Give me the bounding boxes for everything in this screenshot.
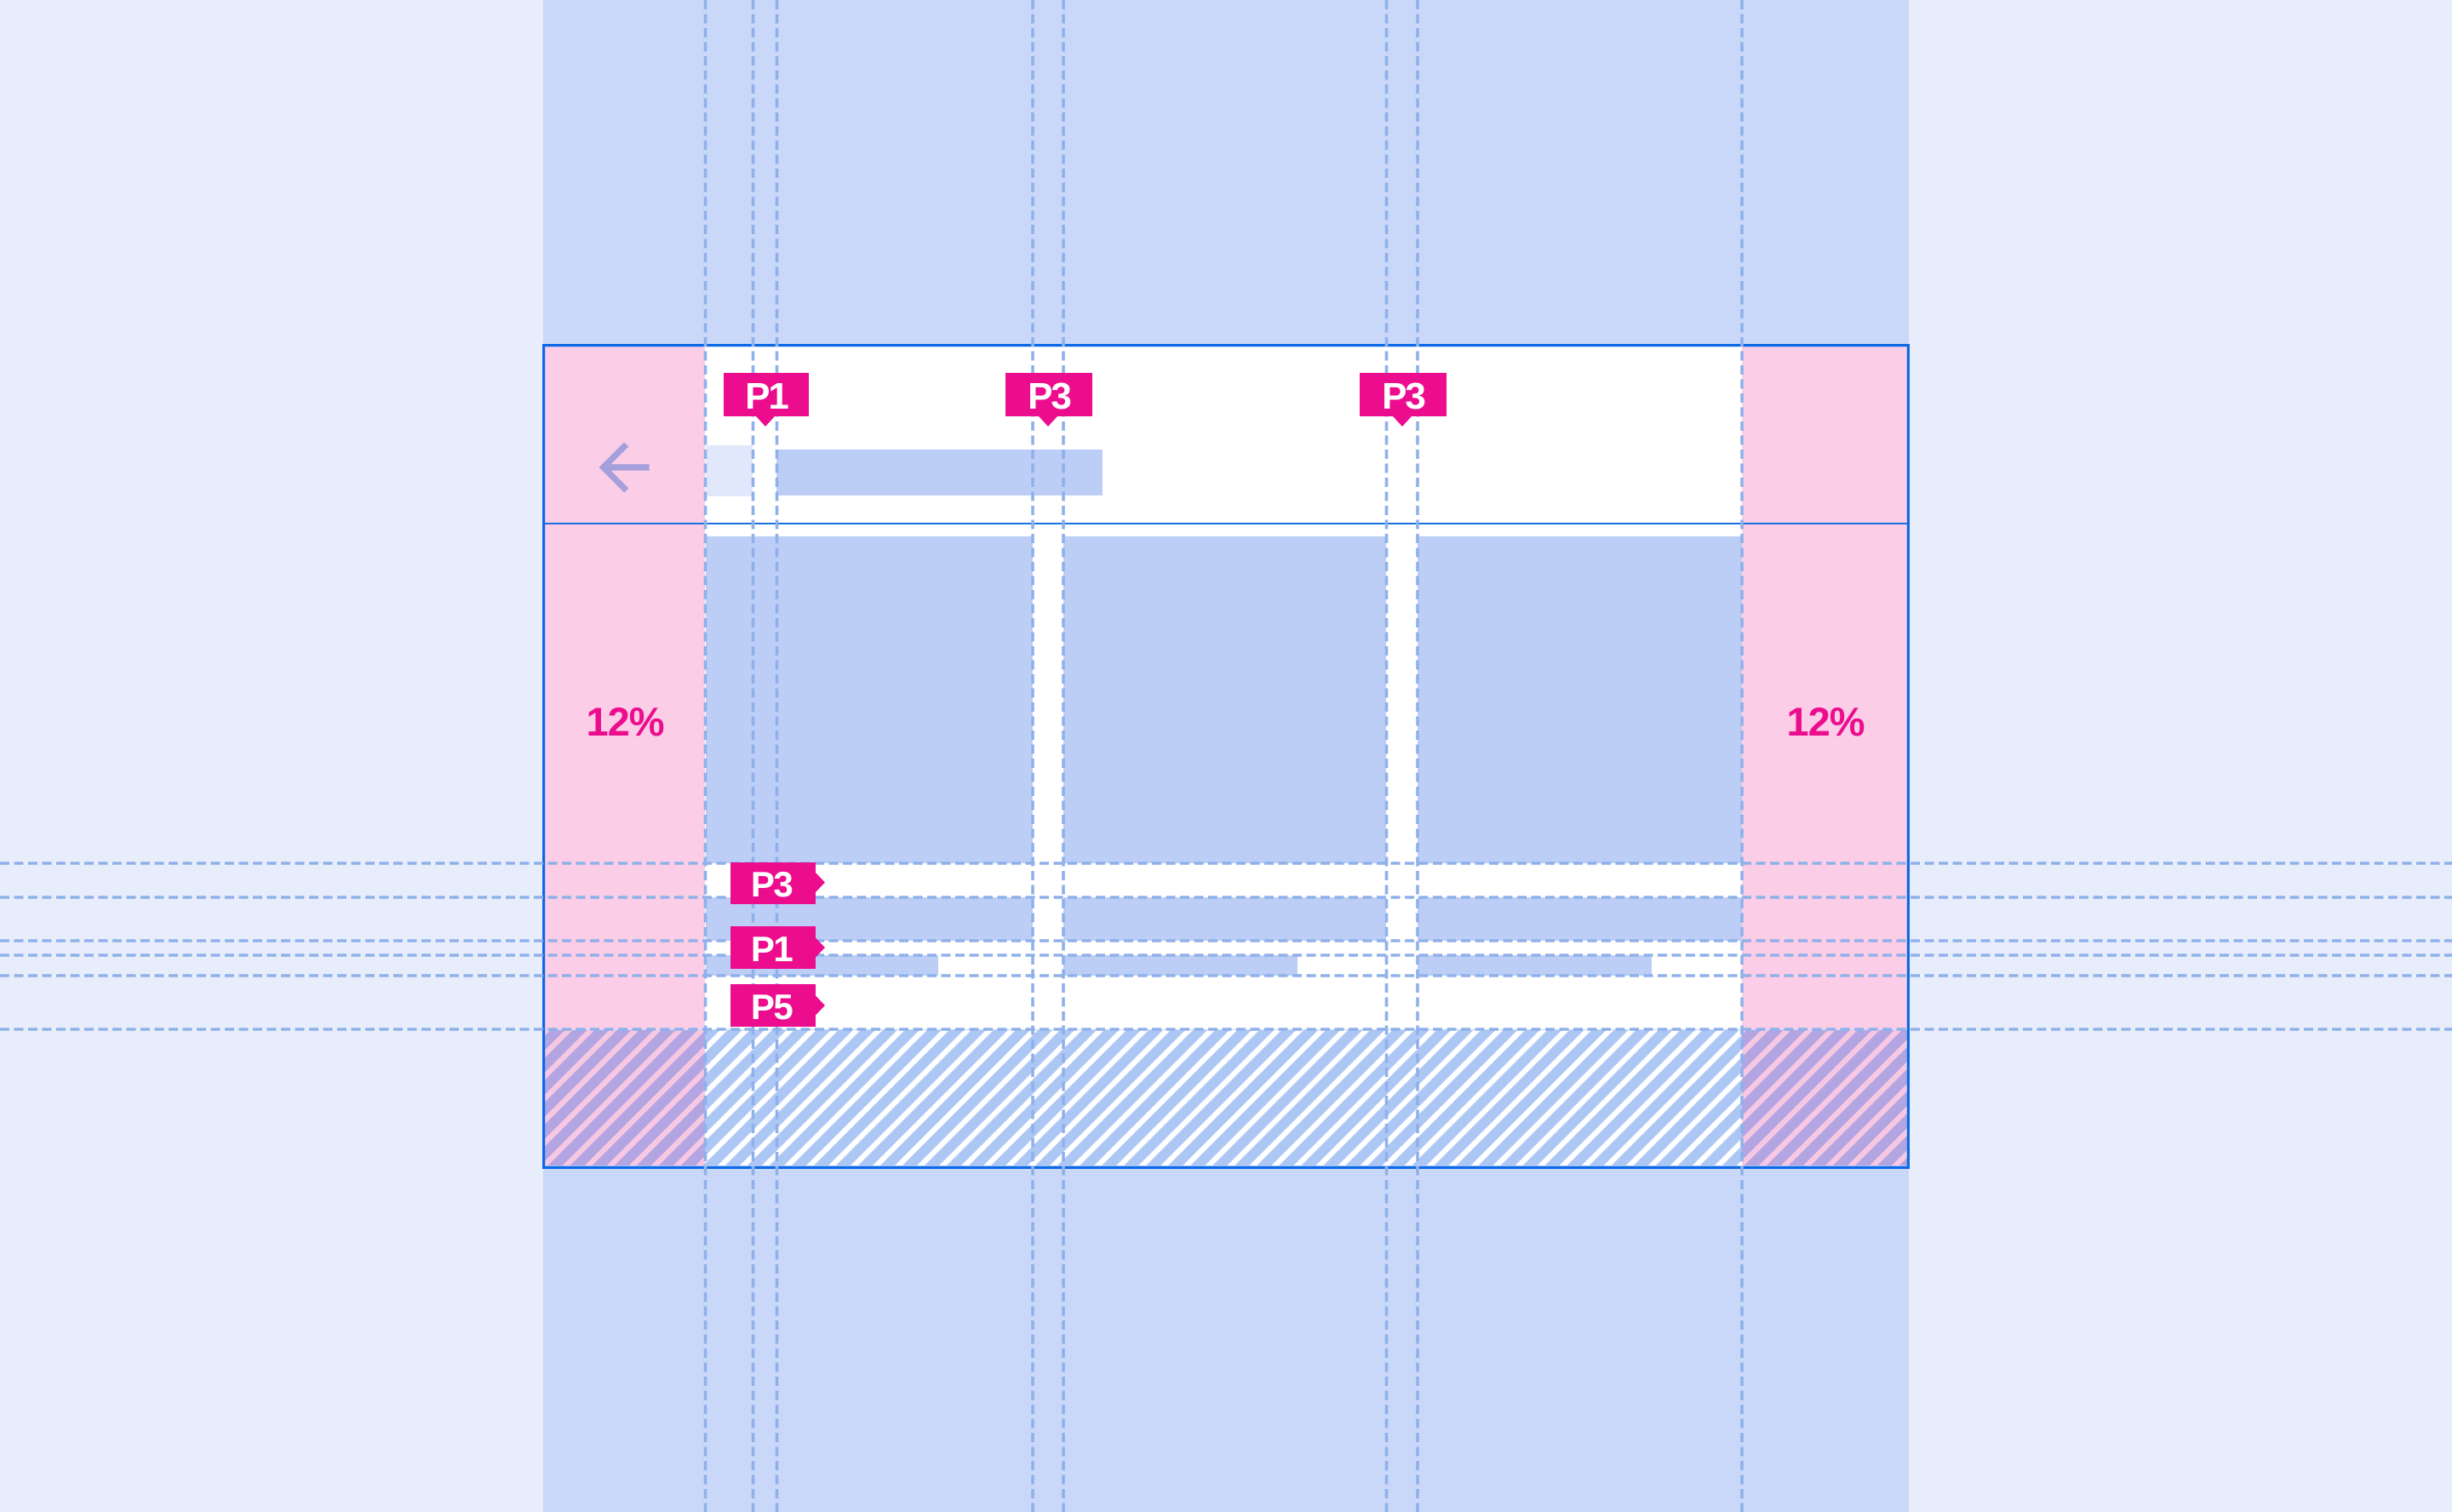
svg-text:P3: P3 — [1028, 375, 1070, 417]
svg-text:P1: P1 — [745, 375, 788, 417]
svg-text:P3: P3 — [1382, 375, 1424, 417]
svg-text:12%: 12% — [586, 699, 663, 744]
svg-text:12%: 12% — [1786, 699, 1864, 744]
svg-text:P3: P3 — [751, 864, 793, 904]
svg-text:P5: P5 — [751, 987, 793, 1027]
svg-text:P1: P1 — [751, 929, 793, 969]
